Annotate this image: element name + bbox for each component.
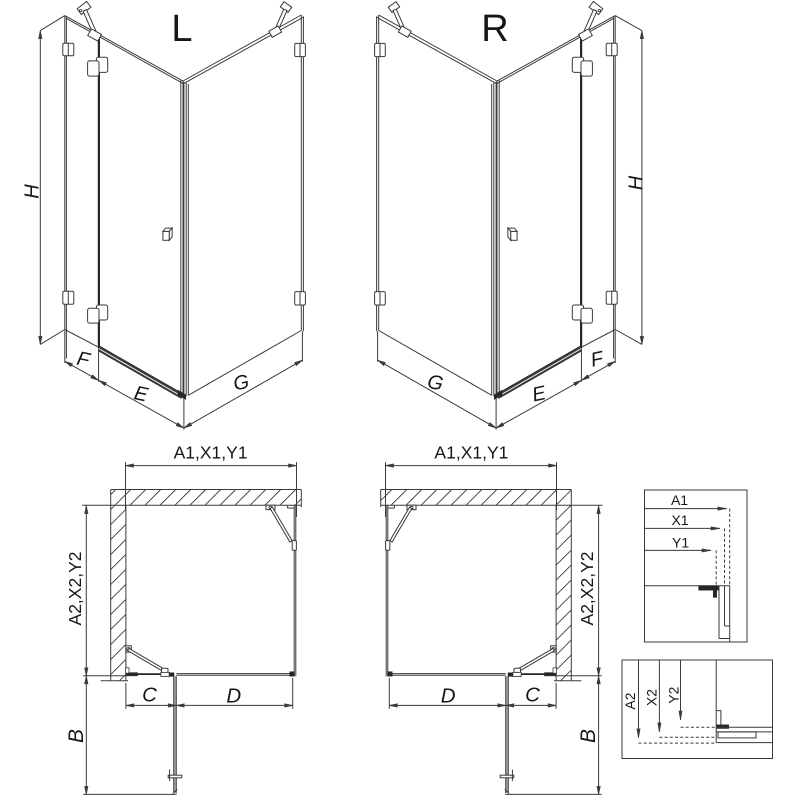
svg-text:Y1: Y1: [672, 535, 689, 551]
svg-text:A2,X2,Y2: A2,X2,Y2: [65, 552, 85, 626]
svg-text:C: C: [525, 684, 540, 707]
svg-text:D: D: [226, 685, 241, 708]
svg-text:A1,X1,Y1: A1,X1,Y1: [174, 442, 248, 462]
svg-text:A1: A1: [671, 492, 688, 508]
svg-text:X1: X1: [671, 512, 688, 528]
svg-text:X2: X2: [644, 689, 660, 706]
svg-text:F: F: [75, 348, 93, 372]
svg-text:Y2: Y2: [666, 686, 682, 703]
svg-text:R: R: [481, 8, 508, 50]
svg-text:C: C: [142, 684, 157, 707]
svg-text:E: E: [530, 382, 548, 406]
svg-text:G: G: [425, 371, 445, 396]
svg-text:D: D: [441, 685, 456, 708]
svg-text:A2,X2,Y2: A2,X2,Y2: [577, 552, 597, 626]
svg-text:G: G: [231, 371, 251, 396]
svg-text:A2: A2: [622, 692, 638, 709]
svg-text:H: H: [21, 184, 43, 199]
svg-text:E: E: [132, 382, 150, 406]
svg-text:F: F: [589, 347, 607, 371]
svg-text:B: B: [65, 729, 88, 743]
svg-text:H: H: [626, 175, 648, 190]
svg-text:B: B: [577, 729, 600, 743]
svg-text:L: L: [171, 8, 192, 50]
svg-text:A1,X1,Y1: A1,X1,Y1: [434, 442, 508, 462]
